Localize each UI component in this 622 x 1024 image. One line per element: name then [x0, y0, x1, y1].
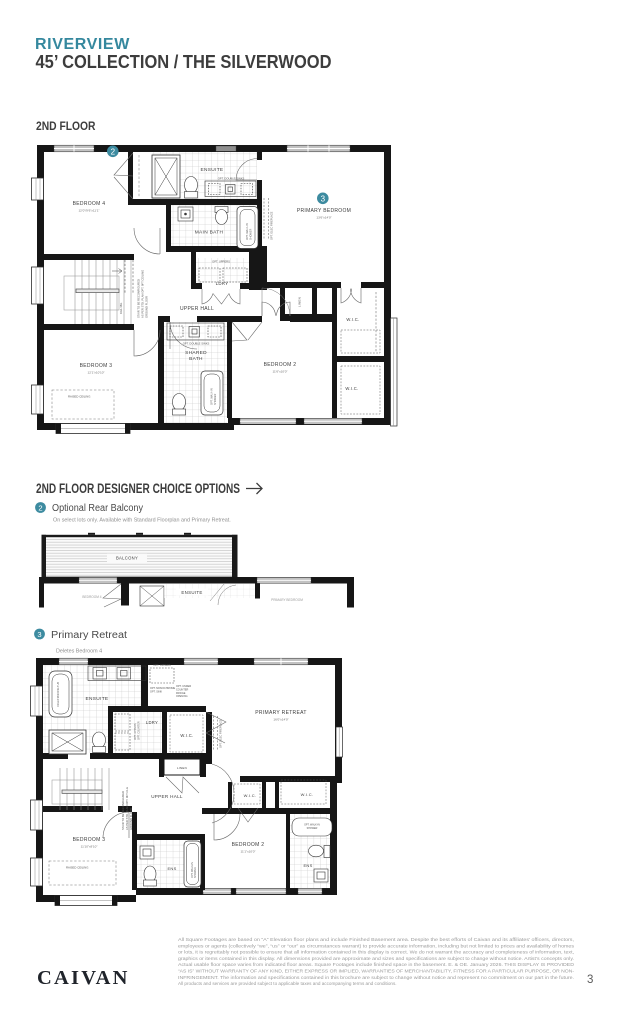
svg-text:OPT. COUNTER: OPT. COUNTER [138, 721, 141, 740]
svg-text:PRIMARY RETREAT: PRIMARY RETREAT [255, 710, 306, 716]
svg-text:2ND FLOOR DESIGNER CHOICE OPTI: 2ND FLOOR DESIGNER CHOICE OPTIONS [36, 481, 240, 496]
svg-text:MAIN BATH: MAIN BATH [195, 230, 224, 236]
svg-text:BEDROOM 2: BEDROOM 2 [232, 842, 265, 848]
svg-text:12’1”x10’10”: 12’1”x10’10” [87, 371, 104, 375]
svg-text:RAIL 36G: RAIL 36G [119, 303, 123, 314]
svg-text:11’1”x10’0”: 11’1”x10’0” [240, 850, 255, 854]
svg-text:SHOWER: SHOWER [194, 867, 197, 878]
svg-text:RAISED CEILING: RAISED CEILING [66, 866, 88, 870]
svg-text:W.I.C.: W.I.C. [345, 386, 358, 391]
svg-text:BEDROOM 3: BEDROOM 3 [80, 363, 113, 369]
svg-text:OPT. UPPERS: OPT. UPPERS [212, 260, 230, 264]
svg-text:11’10”x9’10”: 11’10”x9’10” [81, 845, 98, 849]
svg-text:graphics or items contained in: graphics or items contained in this disp… [178, 956, 574, 961]
svg-text:LDRY: LDRY [146, 720, 158, 725]
svg-text:GROUND FLOOR: GROUND FLOOR [145, 296, 149, 318]
svg-text:3: 3 [587, 974, 593, 986]
svg-text:12’0”/9’6”x11’1”: 12’0”/9’6”x11’1” [78, 209, 99, 213]
svg-text:LINEN: LINEN [177, 766, 187, 770]
svg-text:ENSUITE: ENSUITE [181, 590, 202, 595]
svg-text:employees or agents (collectiv: employees or agents (collectively “we”, … [178, 943, 575, 948]
svg-text:W.I.C.: W.I.C. [346, 317, 359, 322]
svg-text:RAISED CEILING: RAISED CEILING [68, 395, 90, 399]
svg-text:AS PER STD. PLAN OPT. 9FT CEIL: AS PER STD. PLAN OPT. 9FT CEILING [141, 270, 145, 318]
svg-text:OPT. UPPERS: OPT. UPPERS [153, 663, 170, 667]
svg-text:45’ COLLECTION / THE SILVERWOO: 45’ COLLECTION / THE SILVERWOOD [36, 51, 332, 72]
svg-text:3: 3 [321, 194, 326, 203]
svg-text:PRIMARY BEDROOM: PRIMARY BEDROOM [297, 208, 351, 214]
svg-text:SHOWER: SHOWER [250, 229, 253, 240]
svg-text:OPENING: OPENING [176, 695, 188, 698]
svg-text:BALCONY: BALCONY [116, 556, 138, 561]
svg-text:16’0”x14’0”: 16’0”x14’0” [273, 718, 288, 722]
svg-text:W.I.C.: W.I.C. [244, 793, 257, 798]
svg-text:UPPER HALL: UPPER HALL [180, 306, 214, 312]
svg-text:OPT. ELEC FIREPLACE: OPT. ELEC FIREPLACE [219, 719, 223, 748]
svg-text:BEDROOM 2: BEDROOM 2 [264, 362, 297, 368]
svg-text:UPPER HALL: UPPER HALL [151, 794, 183, 799]
svg-text:STAIR TO BE RECONFIGURED: STAIR TO BE RECONFIGURED [121, 791, 125, 830]
svg-text:On select lots only. Available: On select lots only. Available with Stan… [53, 518, 231, 524]
svg-text:CAIVAN: CAIVAN [37, 967, 129, 989]
svg-text:or lots, it is regrettably not: or lots, it is regrettably not possible … [178, 950, 574, 955]
svg-text:W.I.C.: W.I.C. [301, 792, 314, 797]
svg-text:BEDROOM 4: BEDROOM 4 [82, 595, 101, 599]
svg-text:ENSUITE: ENSUITE [201, 167, 224, 173]
svg-text:All products and services are: All products and services are provided s… [178, 981, 397, 986]
svg-text:Optional Rear Balcony: Optional Rear Balcony [52, 503, 143, 514]
svg-text:Primary Retreat: Primary Retreat [51, 630, 127, 641]
svg-text:13’6”x14’0”: 13’6”x14’0” [316, 216, 331, 220]
svg-text:W.I.C.: W.I.C. [180, 733, 193, 738]
svg-text:BATH: BATH [189, 356, 203, 362]
svg-text:11’6”x10’0”: 11’6”x10’0” [272, 370, 287, 374]
svg-text:OPT. DOUBLE SINKS: OPT. DOUBLE SINKS [183, 342, 210, 346]
svg-text:STAIR TO BE RECONFIGURED: STAIR TO BE RECONFIGURED [137, 279, 141, 318]
svg-text:AS PER STD. PLAN OPT. 9FT CLG: AS PER STD. PLAN OPT. 9FT CLG [125, 787, 129, 830]
svg-text:OPT. ELEC FIREPLACE: OPT. ELEC FIREPLACE [270, 211, 274, 240]
svg-text:2: 2 [38, 503, 42, 512]
svg-text:SHOWER: SHOWER [307, 827, 318, 830]
svg-text:LDRY: LDRY [216, 281, 229, 286]
svg-text:3: 3 [37, 630, 41, 639]
svg-text:ENSUITE: ENSUITE [86, 696, 109, 702]
svg-text:ENS: ENS [167, 866, 176, 871]
svg-text:Actual usable floor space vari: Actual usable floor space varies from in… [178, 962, 575, 967]
svg-text:LINEN: LINEN [298, 297, 302, 307]
svg-text:SHARED: SHARED [185, 350, 207, 356]
svg-text:BEDROOM 3: BEDROOM 3 [73, 837, 106, 843]
svg-text:BEDROOM 4: BEDROOM 4 [73, 201, 106, 207]
svg-text:INFRINGEMENT. The information: INFRINGEMENT. The information and specif… [178, 975, 574, 980]
svg-text:GROUND FLOOR: GROUND FLOOR [129, 808, 133, 830]
svg-text:All Square Footages are based: All Square Footages are based on “A” Ele… [178, 937, 574, 942]
svg-text:PRIMARY BEDROOM: PRIMARY BEDROOM [271, 598, 303, 602]
svg-text:ENS: ENS [303, 863, 312, 868]
svg-text:“AS IS” WITHOUT WARRANTY OF AN: “AS IS” WITHOUT WARRANTY OF ANY KIND, EI… [178, 969, 574, 974]
svg-text:OPT. SINK: OPT. SINK [150, 690, 162, 693]
svg-text:2ND FLOOR: 2ND FLOOR [36, 119, 96, 133]
svg-text:2: 2 [111, 147, 116, 156]
svg-text:SHOWER: SHOWER [214, 394, 217, 405]
svg-text:FREESTANDING TUB: FREESTANDING TUB [57, 682, 60, 707]
svg-text:Deletes Bedroom 4: Deletes Bedroom 4 [56, 649, 102, 655]
